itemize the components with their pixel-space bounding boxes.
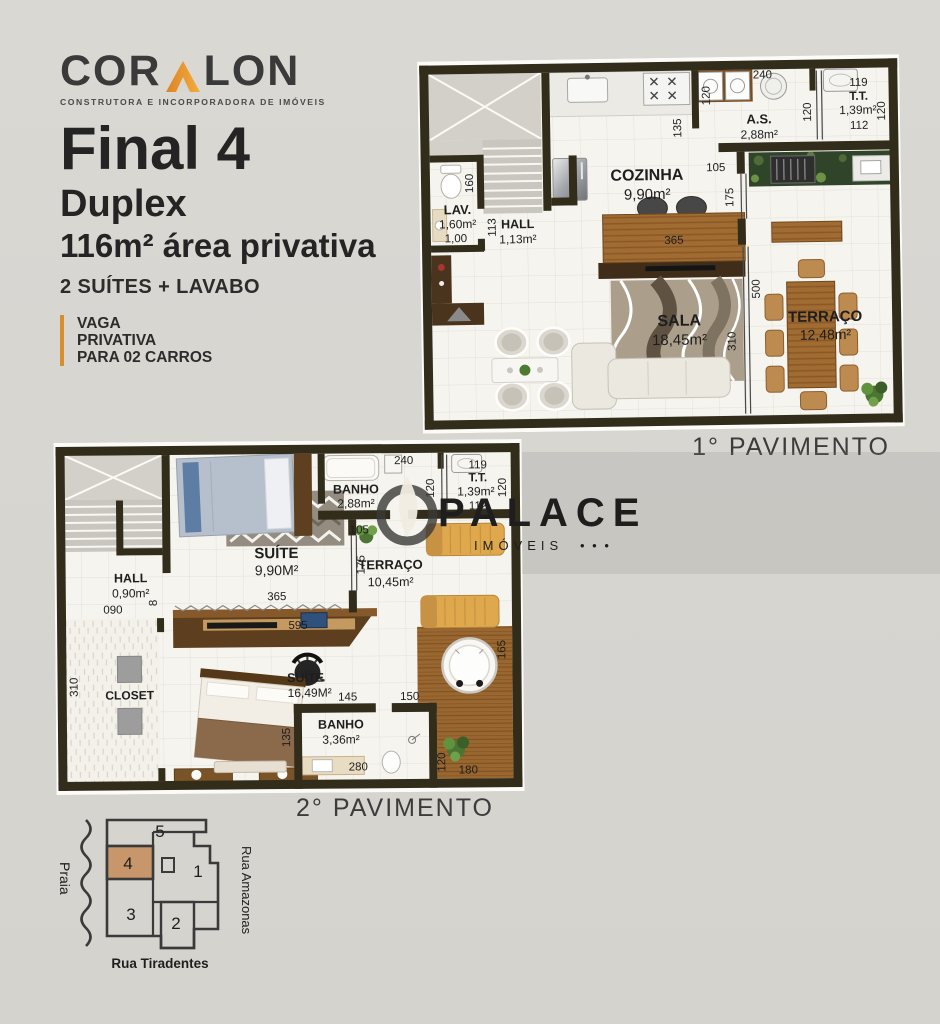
unit-2-label: 2 [171,914,180,933]
street-tiradentes: Rua Tiradentes [111,956,208,971]
desk [173,608,377,648]
unit-3-label: 3 [126,905,135,924]
dim-365: 365 [267,591,286,603]
palace-watermark: PALACE IMÓVEIS • • • [362,470,662,570]
tt-label: T.T. [849,89,868,103]
suite1-label: SUÍTE [254,545,298,562]
kitchen-counter [548,70,694,116]
dim-135: 135 [281,728,293,747]
dim-145: 145 [338,691,357,703]
dim-500: 500 [751,279,763,298]
logo-text-post: LON [204,50,301,93]
terraco-label: TERRAÇO [788,308,863,326]
dim-240: 240 [753,69,772,81]
features-line: 2 SUÍTES + LAVABO [60,276,420,299]
dim-240: 240 [394,455,413,467]
as-label: A.S. [746,111,772,126]
coralon-logo: COR LON [60,50,420,93]
unit-4-label: 4 [123,854,132,873]
hall-label: HALL [114,571,148,585]
cozinha-area: 9,90m² [624,186,671,204]
hall-area: 1,13m² [499,232,537,247]
terraco-area: 12,48m² [800,326,852,343]
suite2-area: 16,49M² [288,686,332,700]
private-area-line: 116m² área privativa [60,229,420,264]
planter-strip [749,150,896,186]
street-amazonas: Rua Amazonas [239,846,254,935]
stairs [65,455,163,552]
dim-120-as: 120 [701,86,713,105]
cozinha-label: COZINHA [610,167,684,185]
site-map: Praia 5 4 1 3 2 Rua Amazonas Rua Tiraden… [38,816,310,1012]
banho2-area: 3,36m² [322,732,359,746]
dim-120-tt-l: 120 [802,102,814,121]
as-area: 2,88m² [741,127,779,142]
hall-label: HALL [501,217,535,232]
dim-180: 180 [459,764,478,776]
unit-subtitle: Duplex [60,185,420,223]
dim-150: 150 [400,691,419,703]
dim-135: 135 [672,118,684,137]
terrace-console [772,221,842,242]
shoreline-wave [82,820,91,946]
toilet-icon [441,165,462,198]
jacuzzi-icon [442,638,496,692]
dim-595: 595 [288,620,307,632]
dim-120-tt-r: 120 [876,101,888,120]
dim-365: 365 [664,235,683,247]
parking-line-2: PRIVATIVA [77,332,420,349]
logo-text-pre: COR [60,50,162,93]
sala-label: SALA [657,312,701,330]
hall-area: 0,90m² [112,586,149,600]
dim-090: 090 [103,604,122,616]
lav-area: 1,60m² [439,217,477,232]
bed-bench [214,761,286,773]
watermark-name: PALACE [438,491,647,535]
unit-5-label: 5 [155,822,164,841]
bed-suite1 [176,454,295,537]
watermark-category: IMÓVEIS [474,538,563,553]
sala-area: 18,45m² [652,331,707,349]
suite1-area: 9,90M² [255,562,299,578]
dim-113: 113 [487,218,499,237]
street-praia: Praia [57,862,73,895]
dim-310: 310 [726,332,738,351]
headboard-suite1 [294,454,313,536]
dim-175: 175 [724,188,736,207]
dim-119: 119 [849,77,868,89]
logo-triangle-icon [165,59,201,93]
toilet-icon [382,751,400,773]
dim-112: 112 [850,120,869,132]
watermark-dots: • • • [580,538,611,553]
tt-area: 1,39m² [839,103,877,118]
closet-label: CLOSET [105,688,154,702]
dim-120-banho2: 120 [436,752,448,771]
dim-280: 280 [349,761,368,773]
dim-310: 310 [69,678,81,697]
unit-1-label: 1 [193,862,202,881]
floor-plan-1: LAV. 1,60m² 1,00 160 113 HALL 1,13m² COZ… [417,54,905,434]
parking-line-1: VAGA [77,315,420,332]
parking-block: VAGA PRIVATIVA PARA 02 CARROS [60,315,420,366]
lav-width: 1,00 [445,233,468,245]
dim-105: 105 [706,162,725,174]
suite2-label: SUÍTE [287,670,324,685]
logo-tagline: CONSTRUTORA E INCORPORADORA DE IMÓVEIS [60,97,420,107]
flyer-page: COR LON CONSTRUTORA E INCORPORADORA DE I… [0,0,940,1024]
parking-line-3: PARA 02 CARROS [77,349,420,366]
banho2-label: BANHO [318,717,364,731]
lav-label: LAV. [444,202,472,217]
dim-8: 8 [148,600,160,607]
unit-title: Final 4 [60,119,420,179]
dim-160: 160 [464,174,476,193]
terraco2-area: 10,45m² [368,575,414,589]
brand-block: COR LON CONSTRUTORA E INCORPORADORA DE I… [60,50,420,366]
dim-165: 165 [496,640,508,659]
